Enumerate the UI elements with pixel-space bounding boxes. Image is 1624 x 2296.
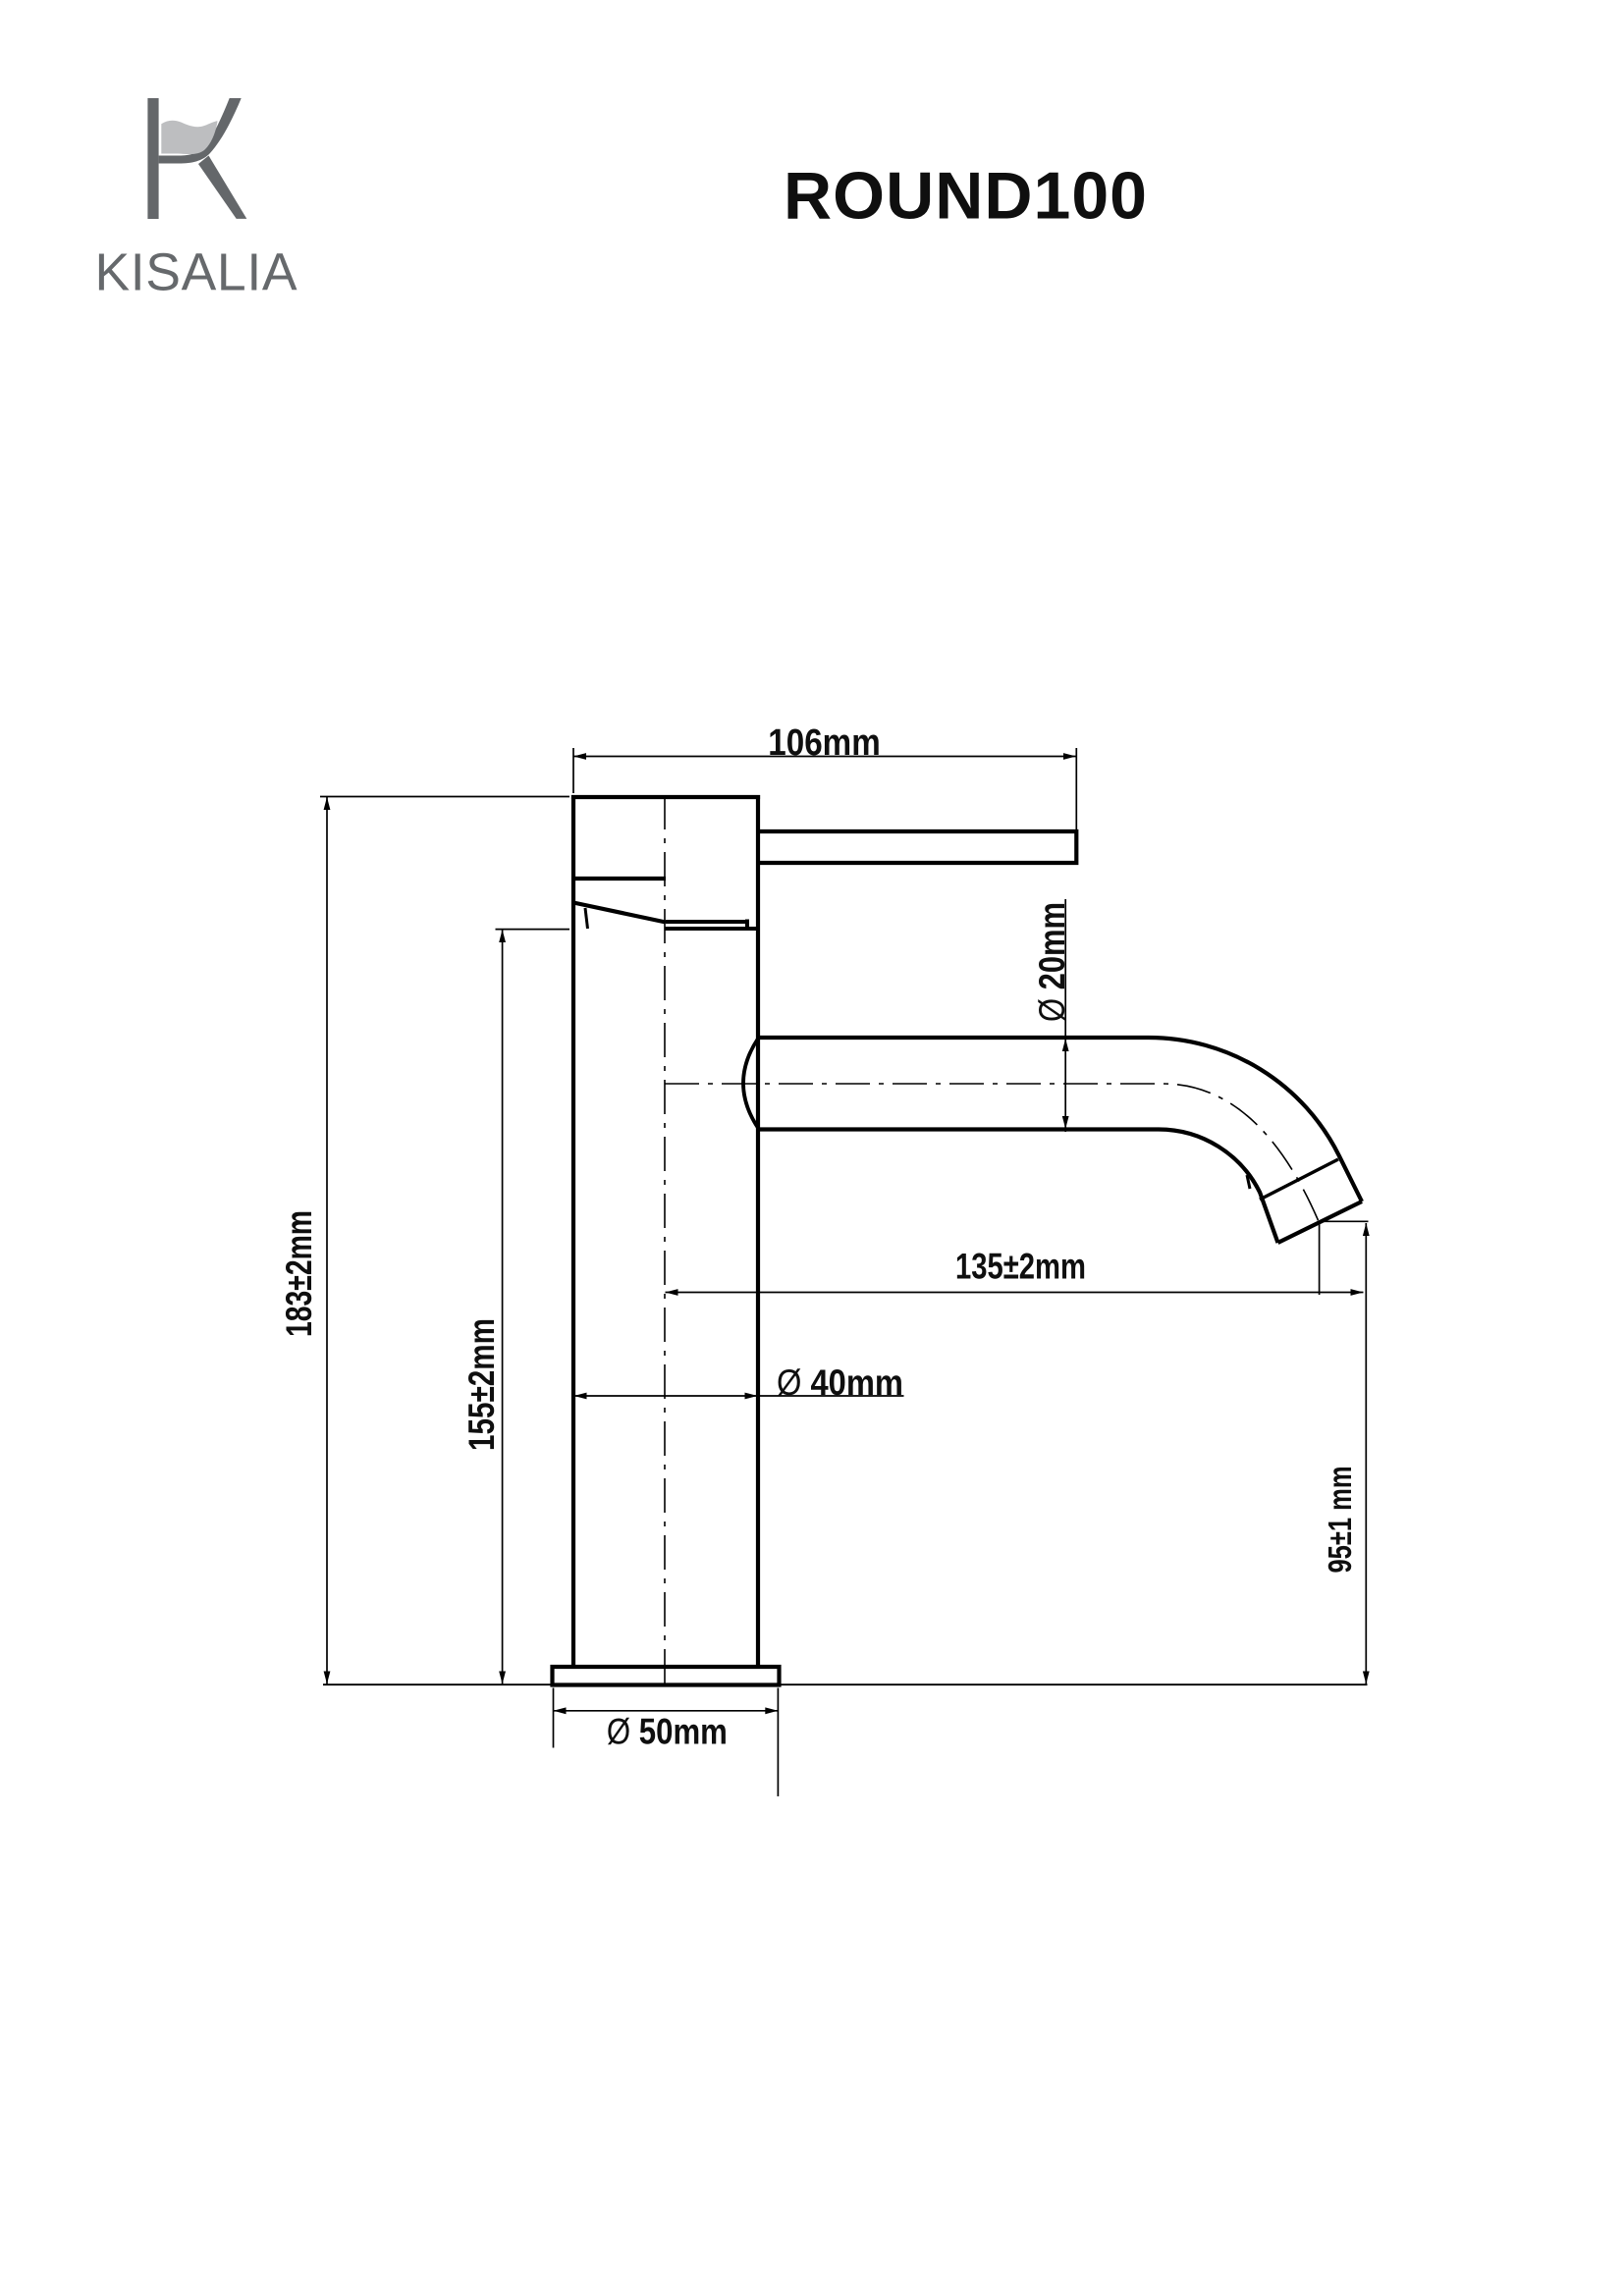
svg-text:155±2mm: 155±2mm: [461, 1318, 502, 1451]
svg-text:135±2mm: 135±2mm: [955, 1247, 1086, 1287]
svg-text:183±2mm: 183±2mm: [279, 1210, 319, 1337]
svg-text:106mm: 106mm: [768, 722, 881, 764]
svg-text:Ø 40mm: Ø 40mm: [777, 1362, 903, 1403]
svg-text:ROUND100: ROUND100: [784, 159, 1147, 234]
svg-text:KISALIA: KISALIA: [95, 244, 298, 302]
svg-text:Ø 20mm: Ø 20mm: [1032, 902, 1072, 1022]
svg-text:Ø 50mm: Ø 50mm: [607, 1712, 728, 1752]
svg-text:95±1 mm: 95±1 mm: [1322, 1467, 1358, 1574]
